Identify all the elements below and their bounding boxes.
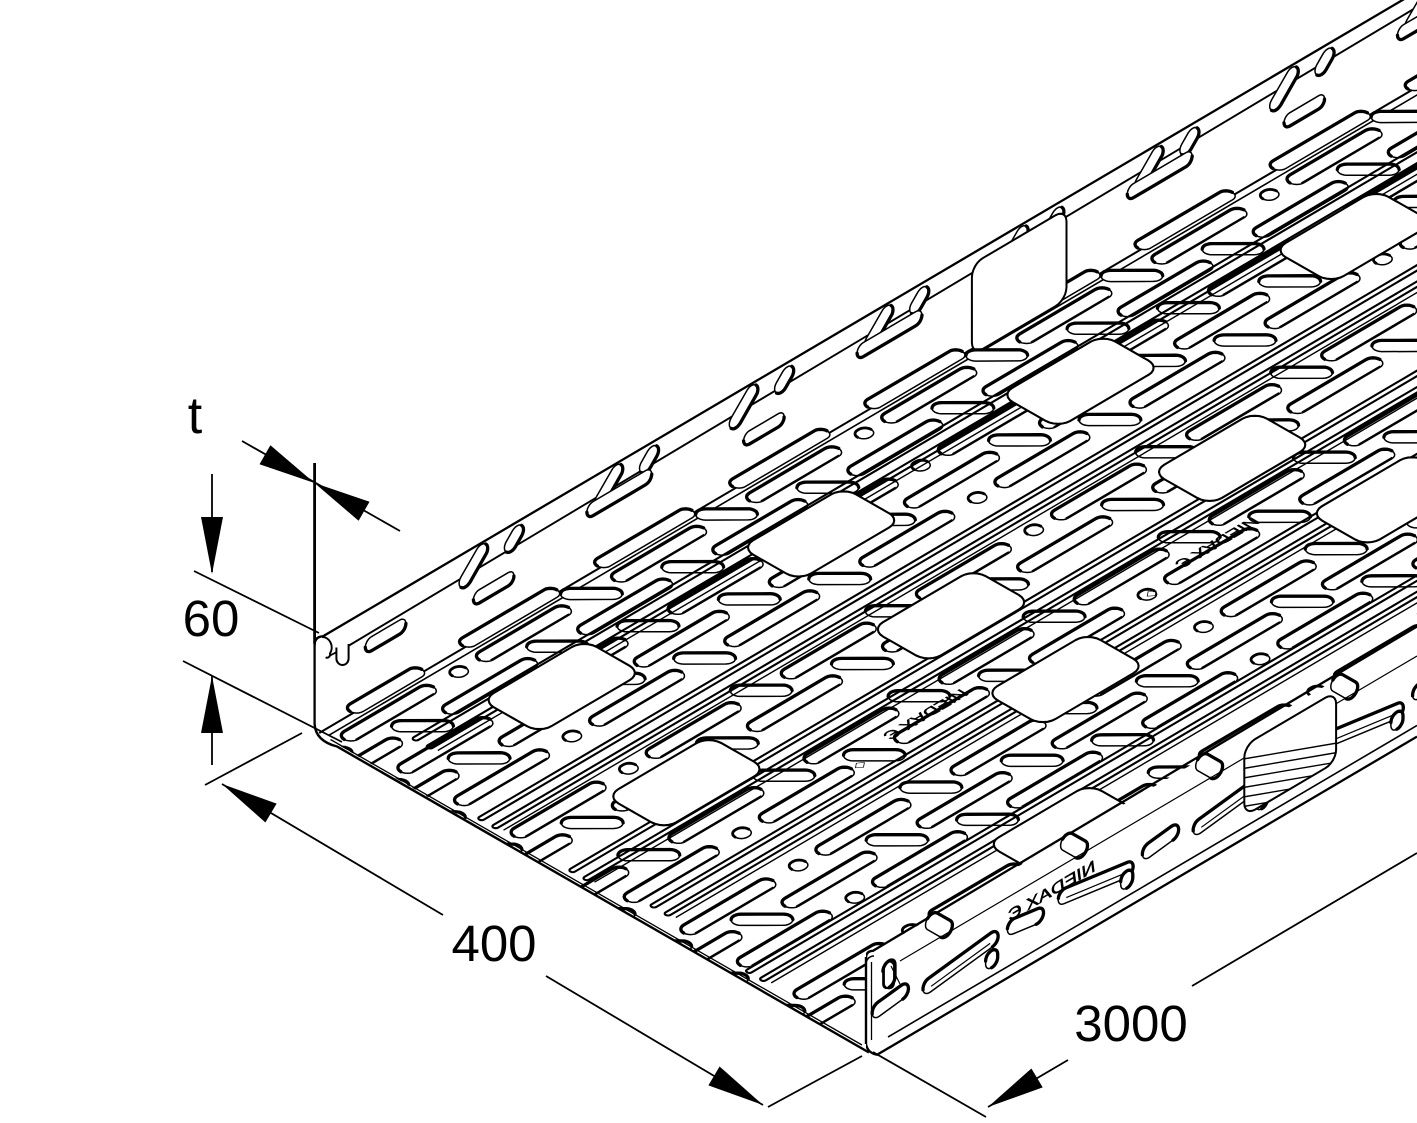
svg-text:400: 400 <box>451 915 536 972</box>
svg-text:t: t <box>188 387 203 445</box>
svg-text:60: 60 <box>183 590 240 647</box>
svg-text:3000: 3000 <box>1074 995 1187 1052</box>
